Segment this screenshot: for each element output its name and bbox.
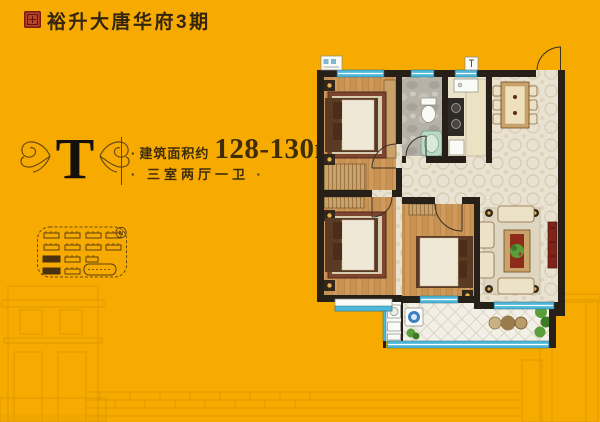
bullet: · [131,146,135,161]
site-minimap: N [36,223,132,281]
flue-box-icon [465,57,478,70]
vertical-divider [121,137,122,185]
dining-set [493,82,537,128]
layout-line: · 三室两厅一卫 · [131,164,265,183]
kitchen-fixtures [448,79,486,156]
site-buildings [43,231,121,275]
floorplan [308,46,574,358]
tv-cabinet [548,222,557,268]
brand-title: 裕升大唐华府3期 [47,7,211,34]
bay-window [335,299,392,311]
unit-type-letter: T [56,126,95,191]
brand-seal-icon [24,11,41,28]
poster-canvas: 裕升大唐华府3期 T · 建筑面积约 128-130m2 · 三室两厅一卫 · [0,0,600,422]
ac-unit-icon [321,56,342,70]
flourish-left-icon [21,142,50,172]
compass-label: N [119,231,123,237]
area-label: 建筑面积约 [139,143,209,162]
unit-type-emblem: T [14,120,136,192]
flourish-right-icon [100,142,129,172]
